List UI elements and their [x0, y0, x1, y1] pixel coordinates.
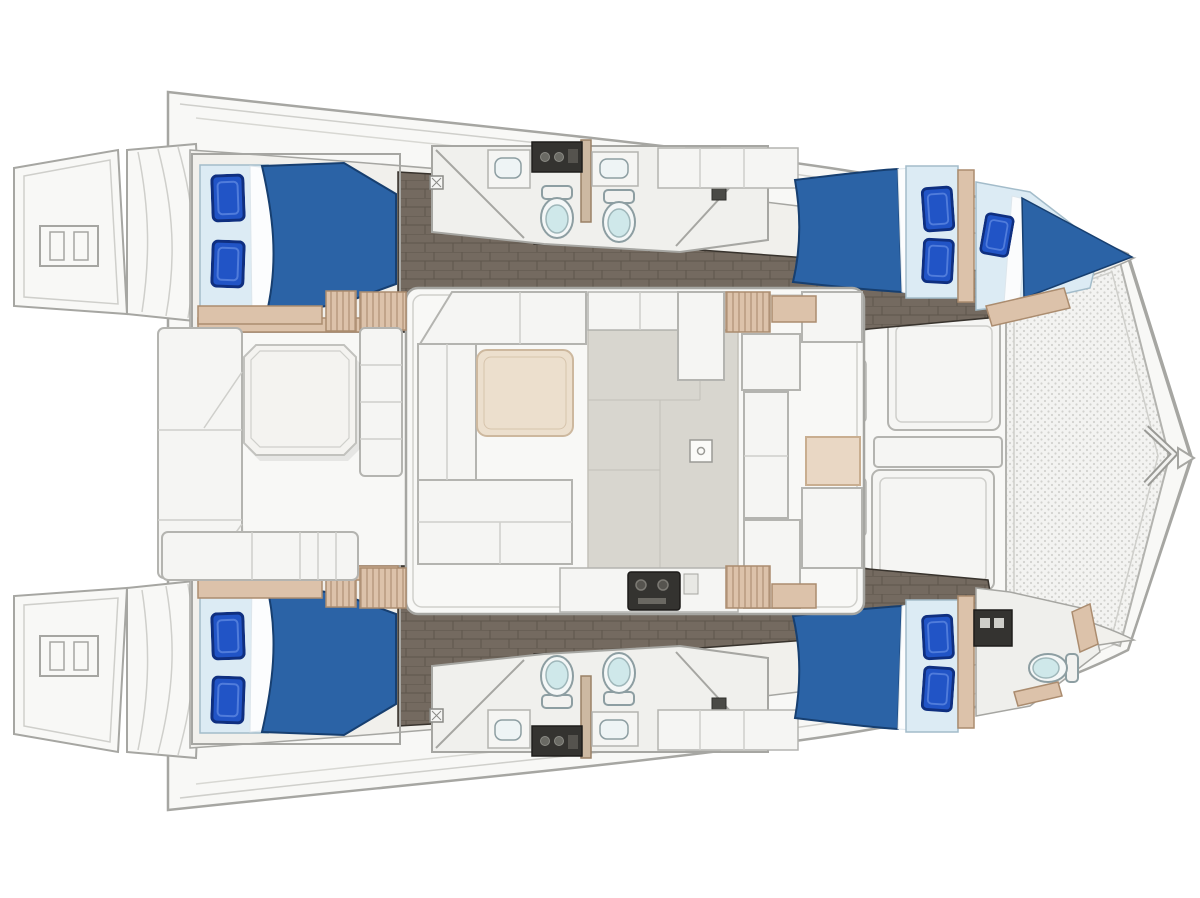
- galley-counter: [802, 488, 862, 568]
- table-top: [244, 345, 356, 455]
- pillow: [212, 613, 245, 659]
- stairs-hatched: [360, 568, 406, 608]
- pillow: [980, 213, 1014, 257]
- boarding-ladder: [40, 226, 98, 266]
- salon-table: [477, 350, 573, 436]
- pillow: [212, 175, 245, 221]
- stairs-hatched: [360, 292, 406, 330]
- starboard-bow-bathroom: [974, 588, 1100, 716]
- galley-counter: [742, 334, 800, 390]
- bed-duvet: [793, 606, 902, 729]
- port-swim-platform: [14, 144, 204, 322]
- toilet: [603, 190, 635, 242]
- dresser-band: [658, 710, 798, 750]
- sink-counter: [488, 150, 530, 188]
- appliance-panel: [684, 574, 698, 594]
- toilet: [541, 186, 573, 238]
- floorplan-drawing: [0, 0, 1200, 898]
- galley-island: [678, 292, 724, 380]
- stairs-hatched: [726, 292, 770, 332]
- pillow: [212, 677, 245, 723]
- headboard-shelf: [958, 170, 974, 302]
- galley-tall-cabinet: [744, 392, 788, 518]
- stairs-hatched: [326, 291, 356, 331]
- bow-trampoline: [1006, 262, 1194, 646]
- salon-deckhouse: [326, 288, 864, 614]
- boarding-ladder: [40, 636, 98, 676]
- stairs-landing-beige: [772, 584, 816, 608]
- sink-counter: [592, 712, 638, 746]
- cockpit-table: [244, 345, 360, 461]
- stairs-hatched: [726, 566, 770, 608]
- pillow: [922, 239, 953, 283]
- deck-hardware-square: [430, 709, 443, 722]
- toilet: [1029, 654, 1078, 682]
- pillow: [922, 667, 954, 711]
- foredeck-hatch-1: [888, 318, 1000, 430]
- sink-counter: [592, 152, 638, 186]
- chart-table-beige: [806, 437, 860, 485]
- toilet: [603, 653, 635, 705]
- toilet: [541, 656, 573, 708]
- dresser-band: [658, 148, 798, 188]
- stove: [628, 572, 680, 610]
- pillow: [922, 187, 954, 231]
- cockpit-backrest-strip: [198, 306, 322, 324]
- headboard-shelf: [958, 596, 974, 728]
- sink-unit: [690, 440, 712, 462]
- stairs-landing-beige: [772, 296, 816, 322]
- cockpit-backrest-strip: [198, 580, 322, 598]
- salon-sofa: [418, 292, 586, 564]
- cockpit-aft-bench: [162, 532, 358, 580]
- cockpit-forward-bench: [360, 328, 402, 476]
- sink-counter: [488, 710, 530, 748]
- vanity-counter-dark: [532, 142, 582, 172]
- pillow: [922, 615, 953, 659]
- foredeck-step-strip: [874, 437, 1002, 467]
- starboard-swim-platform: [14, 580, 204, 758]
- vanity-counter-dark: [532, 726, 582, 756]
- vanity-counter-dark: [974, 610, 1012, 646]
- pillow: [212, 241, 245, 287]
- deck-hardware-square: [430, 176, 443, 189]
- catamaran-floorplan: [0, 0, 1200, 898]
- bed-duvet: [793, 169, 902, 292]
